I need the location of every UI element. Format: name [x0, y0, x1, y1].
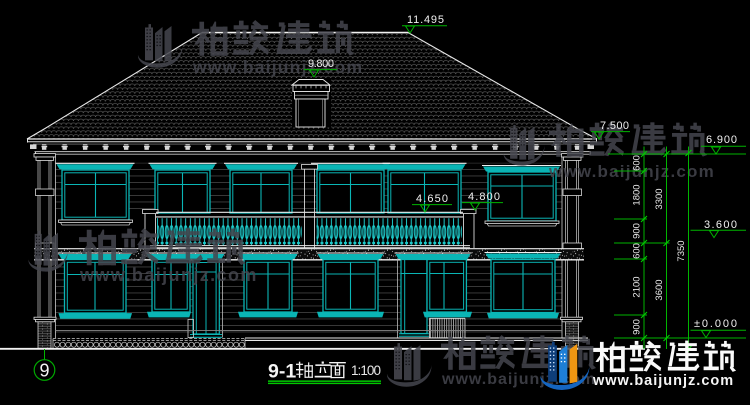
svg-text:7.500: 7.500	[600, 120, 629, 132]
svg-text:600: 600	[632, 243, 643, 259]
svg-text:3.600: 3.600	[704, 219, 737, 231]
svg-text:1:100: 1:100	[351, 363, 381, 378]
svg-text:www.baijunjz.com: www.baijunjz.com	[79, 265, 258, 285]
svg-text:4.650: 4.650	[416, 193, 448, 205]
svg-text:www.baijunjz.com: www.baijunjz.com	[192, 57, 363, 77]
svg-text:9.800: 9.800	[308, 58, 334, 70]
svg-text:3600: 3600	[654, 279, 665, 300]
svg-text:1800: 1800	[632, 184, 643, 205]
svg-text:11.495: 11.495	[407, 14, 444, 26]
svg-text:900: 900	[632, 319, 643, 335]
svg-text:7350: 7350	[676, 240, 687, 261]
svg-text:2100: 2100	[632, 276, 643, 297]
svg-text:9-1: 9-1	[268, 361, 296, 383]
svg-text:600: 600	[632, 155, 643, 171]
svg-text:4.800: 4.800	[468, 191, 500, 203]
svg-text:9: 9	[39, 361, 49, 381]
svg-text:900: 900	[632, 223, 643, 239]
svg-text:www.baijunjz.com: www.baijunjz.com	[592, 373, 734, 389]
svg-text:3300: 3300	[654, 188, 665, 209]
svg-text:6.900: 6.900	[706, 134, 737, 146]
